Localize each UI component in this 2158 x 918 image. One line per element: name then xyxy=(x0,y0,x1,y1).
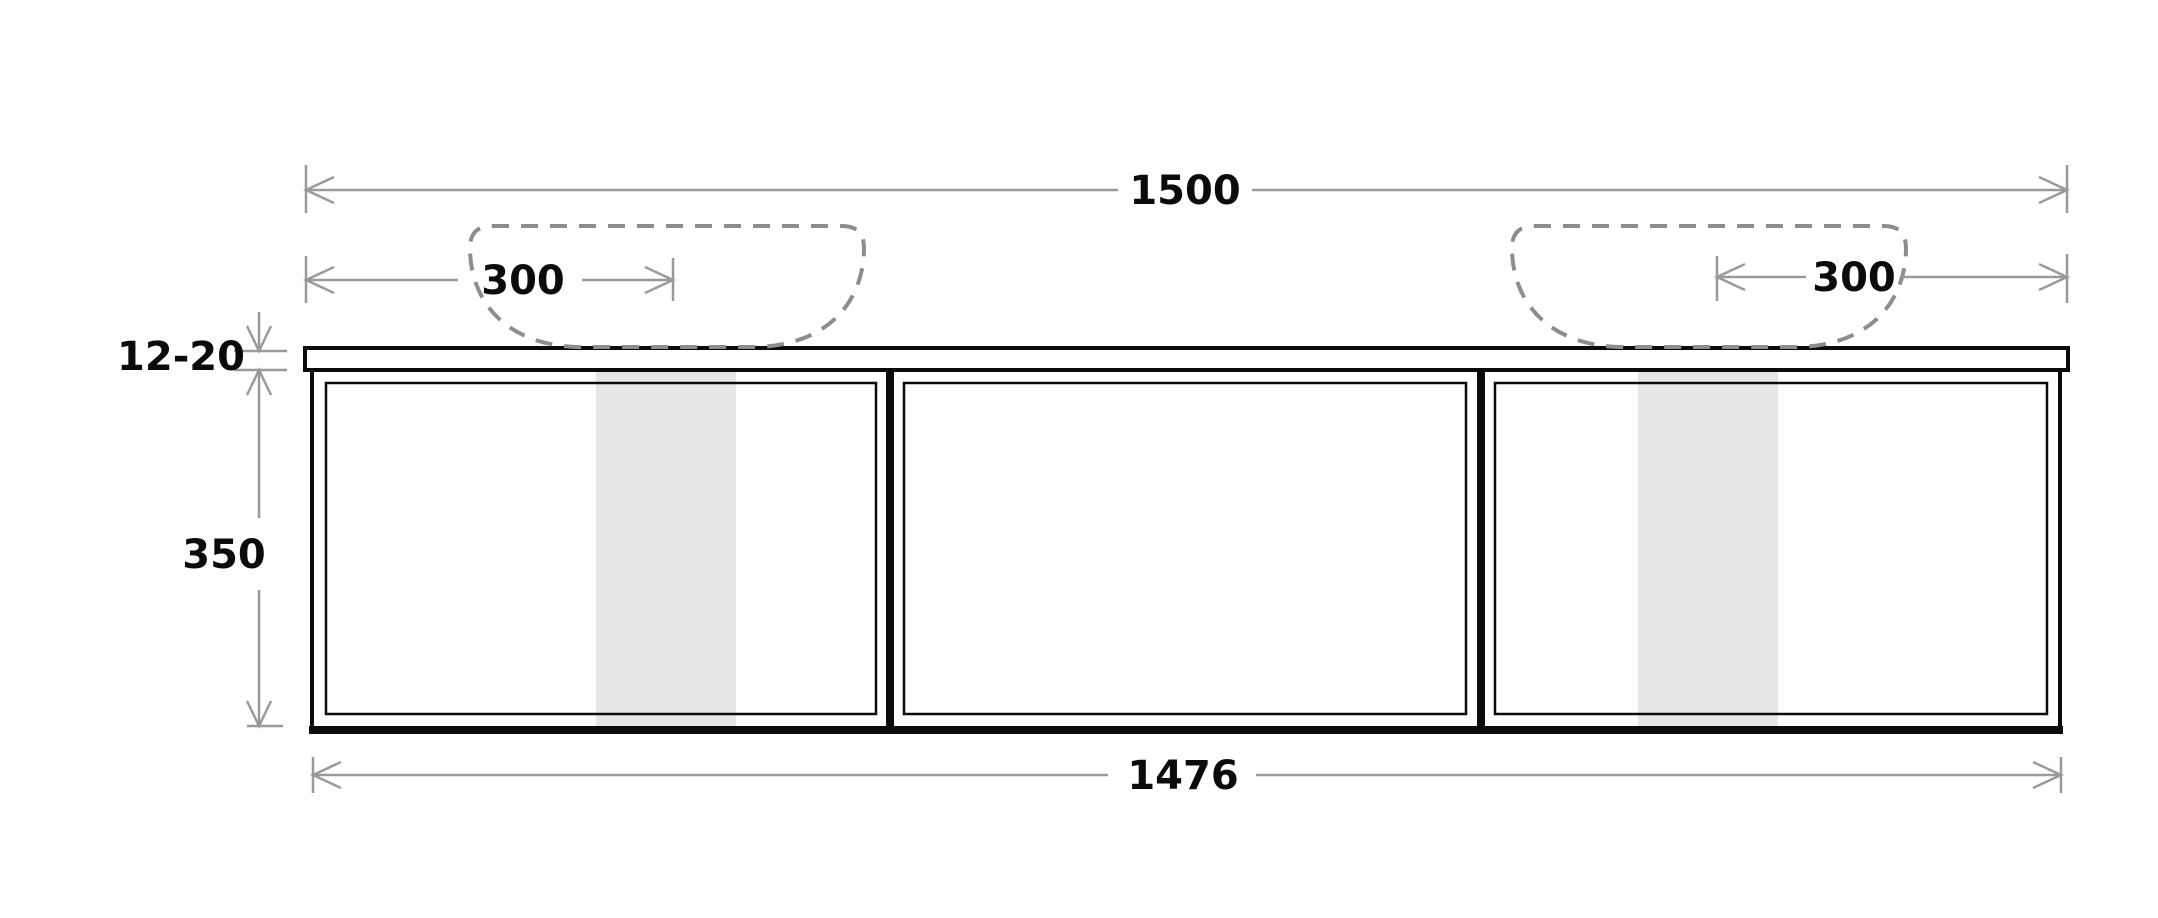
dimension-cabinet-height: 350 xyxy=(182,370,283,726)
dimension-top-thickness: 12-20 xyxy=(117,312,287,395)
dimension-label-cabinet-width: 1476 xyxy=(1127,753,1238,799)
dimension-label-right-basin-offset: 300 xyxy=(1812,255,1896,301)
dimension-right-basin-offset: 300 xyxy=(1717,254,2067,303)
dimension-label-top-thickness: 12-20 xyxy=(117,334,245,380)
drawer-panel-middle xyxy=(904,383,1466,714)
dimension-cabinet-width: 1476 xyxy=(313,753,2061,799)
vanity-dimension-drawing: 1500 300 300 12-20 350 xyxy=(0,0,2158,918)
dimension-label-overall-width: 1500 xyxy=(1129,168,1240,214)
dimension-label-cabinet-height: 350 xyxy=(182,532,266,578)
plumbing-zone-band-right xyxy=(1638,372,1778,727)
plumbing-zone-band-left xyxy=(596,372,736,727)
cabinet-section-middle xyxy=(892,370,1479,728)
dimension-overall-width: 1500 xyxy=(306,165,2067,214)
drawing-canvas: 1500 300 300 12-20 350 xyxy=(0,0,2158,918)
dimension-left-basin-offset: 300 xyxy=(306,256,673,304)
countertop xyxy=(305,348,2068,370)
dimension-label-left-basin-offset: 300 xyxy=(481,258,565,304)
